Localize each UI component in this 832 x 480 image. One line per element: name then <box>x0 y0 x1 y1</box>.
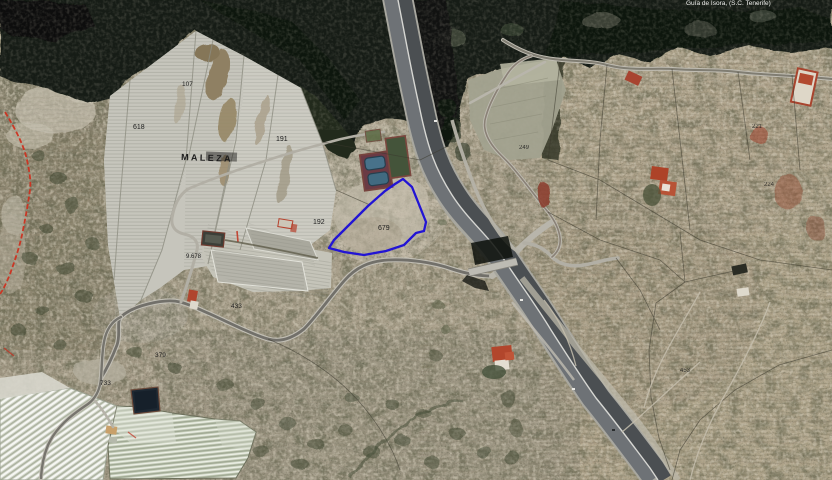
svg-text:MALEZA: MALEZA <box>181 152 233 164</box>
svg-text:453: 453 <box>680 368 691 374</box>
svg-text:379: 379 <box>155 352 166 359</box>
svg-text:433: 433 <box>231 303 242 310</box>
svg-text:221: 221 <box>752 124 763 130</box>
svg-text:618: 618 <box>133 124 145 131</box>
svg-text:9.678: 9.678 <box>186 254 202 260</box>
svg-text:679: 679 <box>378 225 390 232</box>
svg-text:249: 249 <box>519 145 530 151</box>
svg-text:107: 107 <box>182 81 193 88</box>
svg-text:192: 192 <box>313 219 325 226</box>
svg-text:Guía de Isora, (S.C. Tenerife): Guía de Isora, (S.C. Tenerife) <box>686 0 771 7</box>
svg-text:224: 224 <box>764 182 775 188</box>
svg-text:733: 733 <box>100 380 111 387</box>
svg-text:191: 191 <box>276 136 288 143</box>
